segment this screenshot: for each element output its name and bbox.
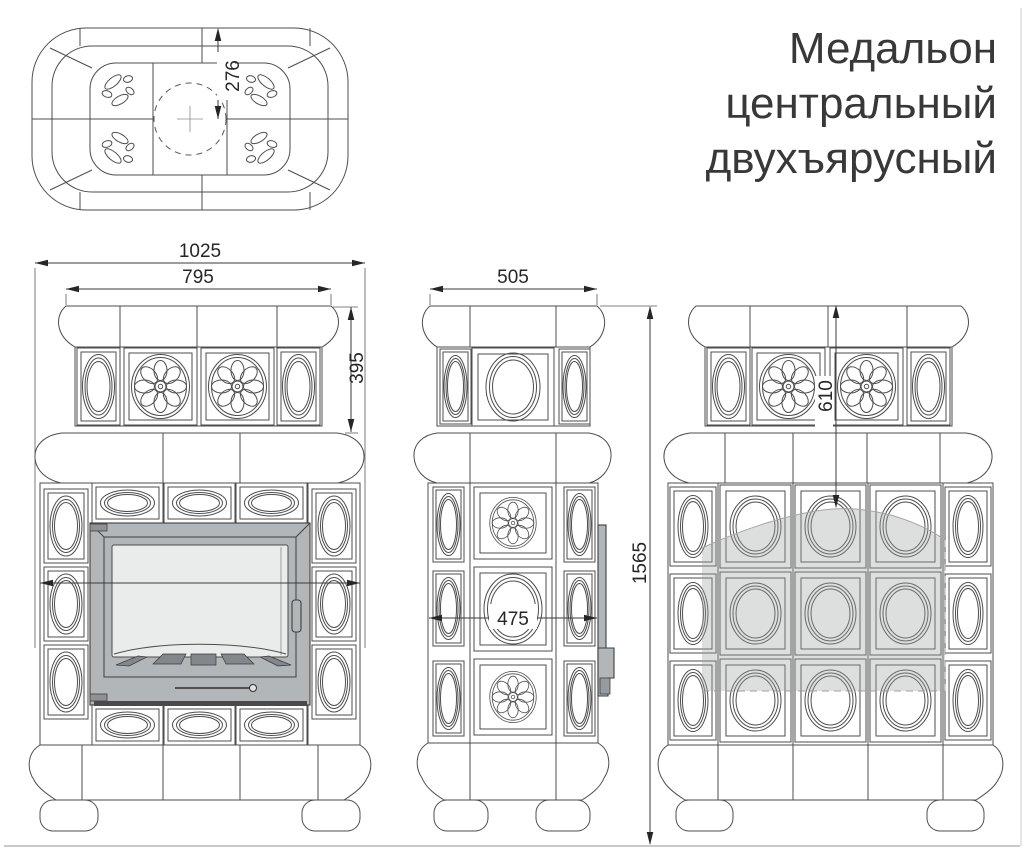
oval-tile — [945, 487, 991, 566]
foot — [40, 800, 98, 831]
oval-tile — [44, 567, 88, 641]
foot — [434, 800, 488, 831]
front-base — [29, 745, 371, 800]
dim-upper-tier-height-label: 395 — [347, 352, 368, 384]
dim-overall-height-label: 1565 — [630, 542, 651, 584]
oval-tile-h — [92, 705, 163, 745]
oval-tile — [564, 661, 595, 736]
rosette-tile — [201, 348, 274, 425]
dim-crown-width-label: 795 — [182, 267, 214, 288]
oval-tile — [77, 348, 120, 425]
dim-side-width-label: 505 — [497, 267, 529, 288]
foot — [302, 800, 360, 831]
petal-ornament — [101, 130, 135, 166]
oval-tile-h — [164, 483, 235, 523]
oval-tile — [564, 571, 595, 646]
title-line-1: Медальон — [789, 24, 997, 73]
side-crown — [422, 306, 604, 347]
firebox — [90, 523, 310, 706]
title-line-3: двухъярусный — [706, 134, 997, 183]
dim-flue-offset: 276 — [215, 28, 244, 119]
front-mantel — [35, 433, 364, 483]
back-base — [658, 745, 1003, 800]
front-view: 1025 795 395 — [29, 241, 371, 831]
oval-tile-h — [92, 483, 163, 523]
oval-tile-h — [236, 705, 307, 745]
heated-zone — [702, 509, 945, 691]
dim-flue-offset-label: 276 — [223, 60, 244, 92]
hinge — [90, 694, 107, 701]
dim-side-body-width-label: 475 — [497, 609, 529, 630]
front-crown — [59, 306, 339, 347]
rosette-tile — [752, 348, 825, 425]
firebox-glass — [112, 545, 288, 657]
oval-tile — [312, 567, 356, 641]
door-latch — [292, 600, 301, 632]
oval-tile — [312, 489, 356, 563]
foot — [536, 800, 590, 831]
top-view: 276 — [32, 28, 348, 210]
oval-tile — [707, 348, 750, 425]
foot — [927, 800, 984, 831]
oval-tile — [559, 349, 590, 424]
title-line-2: центральный — [725, 79, 997, 128]
door-edge-profile — [598, 525, 614, 696]
oval-tile — [907, 348, 950, 425]
door-handle-knob — [250, 685, 257, 692]
side-base — [417, 743, 609, 800]
arrowhead-down — [215, 106, 222, 119]
arrowhead-up — [215, 28, 222, 41]
front-view-body — [29, 306, 371, 831]
dim-upper-section-height-label: 610 — [816, 380, 837, 412]
side-view: 505 475 1565 — [414, 267, 657, 845]
oval-tile — [440, 349, 471, 424]
petal-ornament — [244, 130, 278, 166]
top-view-body — [32, 28, 348, 210]
oval-tile-h — [236, 483, 307, 523]
hinge — [90, 524, 107, 531]
back-view: 610 — [658, 305, 1003, 831]
petal-ornament — [101, 72, 135, 108]
back-mantel — [664, 433, 992, 483]
oval-tile — [945, 661, 991, 740]
side-mantel — [414, 433, 611, 483]
oval-tile — [44, 645, 88, 719]
side-view-body — [414, 306, 614, 831]
drawing-title: Медальон центральный двухъярусный — [706, 24, 997, 183]
rosette-tile — [830, 348, 903, 425]
oval-tile — [312, 645, 356, 719]
dim-crown-width: 795 — [66, 267, 331, 305]
vent-slot — [191, 654, 216, 665]
oval-tile — [945, 574, 991, 653]
oval-tile-h — [164, 705, 235, 745]
oval-tile — [564, 487, 595, 562]
oval-tile — [433, 661, 464, 736]
firebox-shadow — [94, 701, 307, 706]
drawing-sheet: 276 — [0, 0, 1024, 851]
oval-tile — [44, 489, 88, 563]
petal-ornament — [244, 72, 278, 108]
oval-tile — [433, 571, 464, 646]
oval-tile — [277, 348, 320, 425]
dim-overall-width-label: 1025 — [179, 241, 221, 262]
dim-side-width: 505 — [430, 267, 597, 305]
stove-technical-drawing: 276 — [0, 0, 1024, 851]
rosette-tile — [124, 348, 197, 425]
oval-tile — [433, 487, 464, 562]
foot — [676, 800, 733, 831]
